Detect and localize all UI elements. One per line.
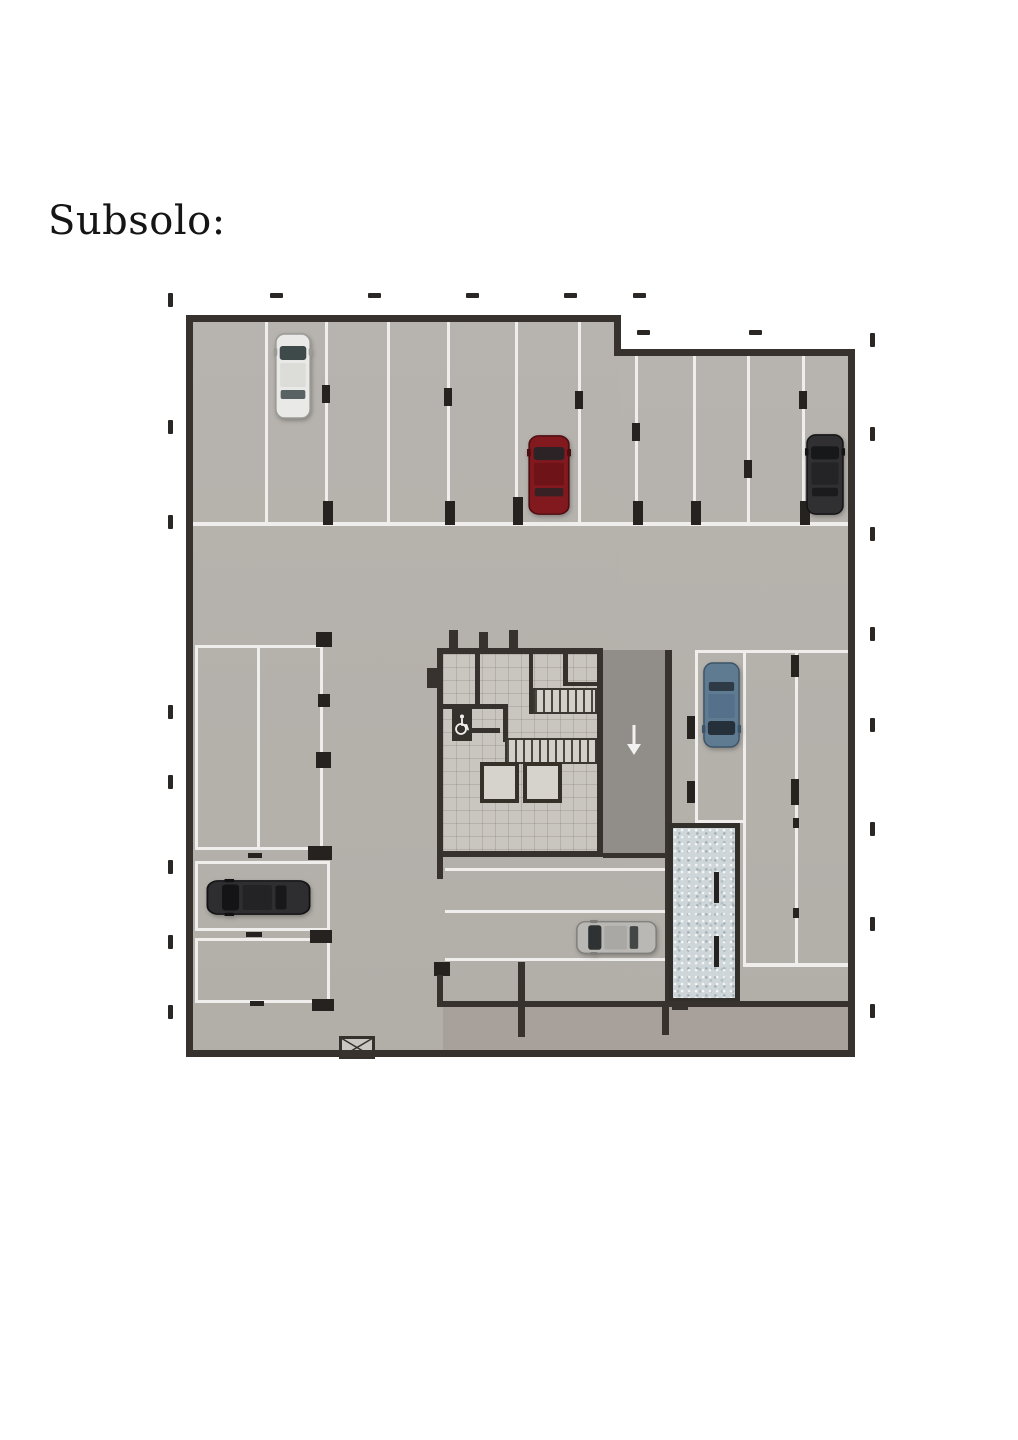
red-car <box>527 434 571 516</box>
document-page: Subsolo: <box>0 0 1018 1440</box>
cars-layer <box>168 285 880 1067</box>
floor-plan <box>168 285 880 1067</box>
black-car <box>805 433 845 516</box>
blue-car <box>702 661 741 749</box>
white-car <box>274 332 312 420</box>
silver-car <box>575 920 658 955</box>
dark-car <box>205 879 312 916</box>
page-title: Subsolo: <box>48 198 226 244</box>
